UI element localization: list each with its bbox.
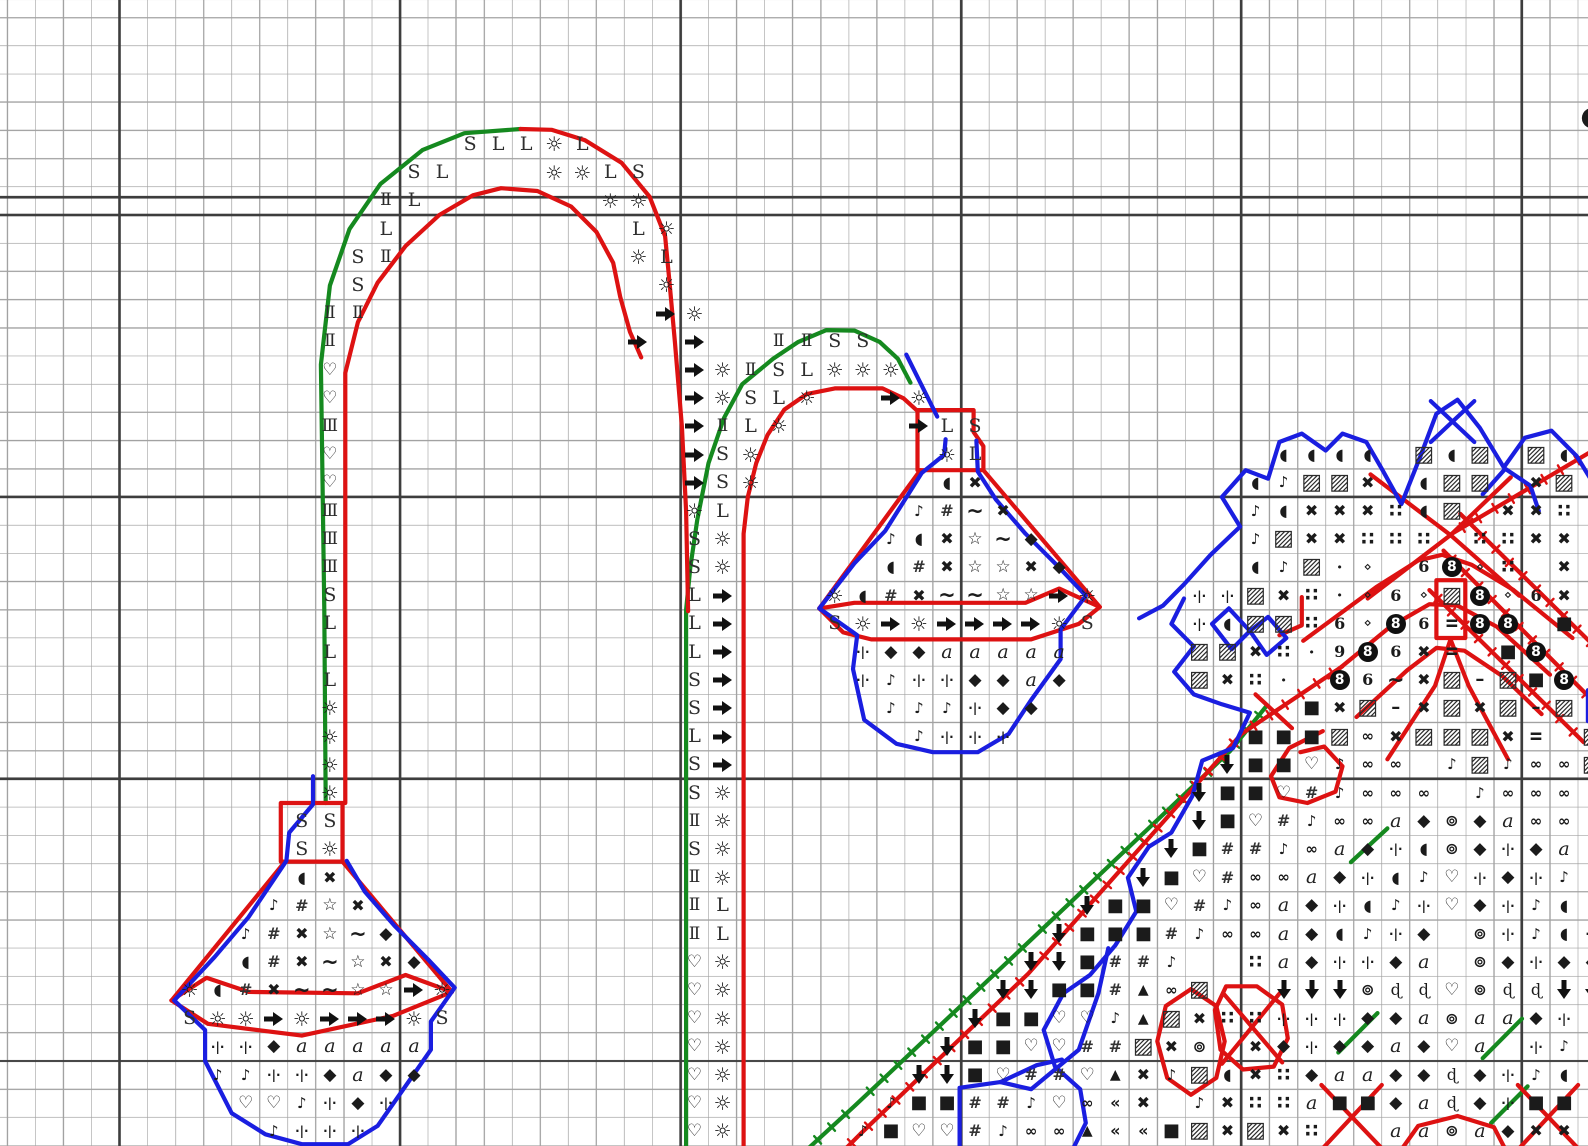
hash-symbol: # [1101, 948, 1129, 976]
letter-S-symbol: S [288, 835, 316, 863]
half-moon-symbol: ◖ [933, 469, 961, 497]
sun-symbol: ☼ [316, 723, 344, 751]
filled-diamond-symbol: ◆ [1382, 1089, 1410, 1117]
star-outline-symbol: ☆ [344, 948, 372, 976]
sun-symbol: ☼ [709, 553, 737, 581]
filled-diamond-symbol: ◆ [1494, 1117, 1522, 1145]
heavy-x-symbol: ✖ [372, 948, 400, 976]
arrow-right-symbol [877, 384, 905, 412]
roman-two-symbol: Ⅱ [793, 328, 821, 356]
heart-outline-symbol: ♡ [1073, 1061, 1101, 1089]
spiral-symbol: ⊚ [1438, 835, 1466, 863]
filled-square-symbol: ■ [1242, 779, 1270, 807]
circled-eight-symbol: 8 [1382, 610, 1410, 638]
heart-outline-symbol: ♡ [316, 356, 344, 384]
filled-triangle-symbol: ▲ [1129, 976, 1157, 1004]
letter-L-symbol: L [316, 638, 344, 666]
hatched-square-symbol: ▨ [1438, 469, 1466, 497]
hash-symbol: # [232, 976, 260, 1004]
hatched-square-symbol: ▨ [1466, 723, 1494, 751]
filled-diamond-symbol: ◆ [344, 1089, 372, 1117]
letter-a-symbol: a [1298, 1089, 1326, 1117]
note-symbol: ♪ [1242, 497, 1270, 525]
filled-diamond-symbol: ◆ [1522, 1005, 1550, 1033]
filled-diamond-symbol: ◆ [316, 1061, 344, 1089]
sun-symbol: ☼ [1045, 610, 1073, 638]
heavy-x-symbol: ✖ [1242, 1061, 1270, 1089]
small-diamond-symbol: ⋄ [1354, 582, 1382, 610]
dot-bar-dot-symbol: ·|· [1522, 864, 1550, 892]
dot-symbol: • [1270, 666, 1298, 694]
arrow-right-symbol [877, 610, 905, 638]
hash-symbol: # [1242, 835, 1270, 863]
hash-symbol: # [1270, 807, 1298, 835]
filled-diamond-symbol: ◆ [1298, 920, 1326, 948]
note-symbol: ♪ [1550, 1033, 1578, 1061]
sun-symbol: ☼ [821, 582, 849, 610]
dot-bar-dot-symbol: ·|· [1326, 1005, 1354, 1033]
filled-diamond-symbol: ◆ [1326, 864, 1354, 892]
sun-symbol: ☼ [709, 525, 737, 553]
half-moon-symbol: ◖ [1213, 610, 1241, 638]
filled-diamond-symbol: ◆ [1466, 835, 1494, 863]
half-moon-symbol: ◖ [849, 582, 877, 610]
dot-bar-dot-symbol: ·|· [1298, 1033, 1326, 1061]
hatched-square-symbol: ▨ [1438, 666, 1466, 694]
arrow-right-symbol [260, 1005, 288, 1033]
filled-diamond-symbol: ◆ [1326, 1033, 1354, 1061]
filled-triangle-symbol: ▲ [1101, 1061, 1129, 1089]
letter-S-symbol: S [681, 751, 709, 779]
hash-symbol: # [989, 1089, 1017, 1117]
hatched-square-symbol: ▨ [1354, 694, 1382, 722]
roman-two-symbol: Ⅱ [372, 187, 400, 215]
note-symbol: ♪ [260, 1117, 288, 1145]
note-symbol: ♪ [1298, 807, 1326, 835]
letter-L-symbol: L [624, 215, 652, 243]
four-dots-symbol: ∷ [1270, 1089, 1298, 1117]
heavy-x-symbol: ✖ [933, 553, 961, 581]
roman-two-symbol: Ⅱ [316, 328, 344, 356]
letter-L-symbol: L [652, 243, 680, 271]
arrow-right-symbol [989, 610, 1017, 638]
filled-diamond-symbol: ◆ [1494, 864, 1522, 892]
infinity-symbol: ∞ [1298, 835, 1326, 863]
filled-diamond-symbol: ◆ [1410, 807, 1438, 835]
arrow-right-symbol [681, 441, 709, 469]
filled-square-symbol: ■ [1242, 751, 1270, 779]
filled-diamond-symbol: ◆ [1494, 948, 1522, 976]
filled-square-symbol: ■ [905, 1089, 933, 1117]
filled-diamond-symbol: ◆ [1410, 1061, 1438, 1089]
hatched-square-symbol: ▨ [1466, 751, 1494, 779]
note-symbol: ♪ [1185, 1089, 1213, 1117]
sun-symbol: ☼ [709, 807, 737, 835]
heavy-x-symbol: ✖ [1298, 525, 1326, 553]
heavy-x-symbol: ✖ [1129, 1061, 1157, 1089]
hash-symbol: # [1017, 1061, 1045, 1089]
half-moon-symbol: ◖ [1213, 1061, 1241, 1089]
note-symbol: ♪ [1017, 1089, 1045, 1117]
note-symbol: ♪ [849, 1117, 877, 1145]
arrow-right-symbol [400, 976, 428, 1004]
hatched-square-symbol: ▨ [1438, 497, 1466, 525]
small-diamond-symbol: ⋄ [1354, 610, 1382, 638]
roman-two-symbol: Ⅱ [681, 920, 709, 948]
filled-square-symbol: ■ [1550, 610, 1578, 638]
circled-eight-symbol: 8 [1466, 610, 1494, 638]
note-symbol: ♪ [1522, 1061, 1550, 1089]
filled-square-symbol: ■ [1213, 807, 1241, 835]
heavy-x-symbol: ✖ [1410, 666, 1438, 694]
letter-L-symbol: L [596, 159, 624, 187]
heavy-x-symbol: ✖ [1017, 553, 1045, 581]
six-symbol: 6 [1410, 553, 1438, 581]
filled-square-symbol: ■ [1326, 1089, 1354, 1117]
letter-a-symbol: a [933, 638, 961, 666]
infinity-symbol: ∞ [1522, 807, 1550, 835]
half-moon-symbol: ◖ [1550, 920, 1578, 948]
heavy-x-symbol: ✖ [1550, 582, 1578, 610]
star-outline-symbol: ☆ [316, 920, 344, 948]
tilde-symbol: ~ [933, 582, 961, 610]
dash-symbol: – [1522, 694, 1550, 722]
dot-symbol: • [1326, 582, 1354, 610]
arrow-down-symbol [989, 976, 1017, 1004]
letter-S-symbol: S [456, 130, 484, 158]
heavy-x-symbol: ✖ [1213, 1089, 1241, 1117]
infinity-symbol: ∞ [1410, 779, 1438, 807]
arrow-right-symbol [709, 666, 737, 694]
sun-symbol: ☼ [624, 243, 652, 271]
filled-diamond-symbol: ◆ [1017, 694, 1045, 722]
four-dots-symbol: ∷ [1466, 525, 1494, 553]
dot-bar-dot-symbol: ·|· [1382, 920, 1410, 948]
heavy-x-symbol: ✖ [1550, 525, 1578, 553]
letter-a-symbol: a [1410, 1089, 1438, 1117]
note-symbol: ♪ [260, 892, 288, 920]
hatched-square-symbol: ▨ [1466, 469, 1494, 497]
four-dots-symbol: ∷ [1494, 553, 1522, 581]
heart-outline-symbol: ♡ [681, 1005, 709, 1033]
filled-diamond-symbol: ◆ [260, 1033, 288, 1061]
tilde-symbol: ~ [316, 948, 344, 976]
sun-symbol: ☼ [709, 1089, 737, 1117]
arrow-down-symbol [933, 1033, 961, 1061]
letter-L-symbol: L [709, 497, 737, 525]
tilde-symbol: ~ [316, 976, 344, 1004]
sun-symbol: ☼ [709, 1005, 737, 1033]
tilde-symbol: ~ [288, 976, 316, 1004]
infinity-symbol: ∞ [1522, 779, 1550, 807]
hash-symbol: # [260, 948, 288, 976]
note-symbol: ♪ [288, 1089, 316, 1117]
filled-diamond-symbol: ◆ [1410, 920, 1438, 948]
arrow-down-symbol [1157, 835, 1185, 863]
circled-eight-symbol: 8 [1354, 638, 1382, 666]
dash-symbol: – [1382, 694, 1410, 722]
letter-a-symbol: a [1045, 638, 1073, 666]
hatched-square-symbol: ▨ [1270, 525, 1298, 553]
letter-S-symbol: S [400, 159, 428, 187]
four-dots-symbol: ∷ [1242, 1005, 1270, 1033]
letter-a-symbol: a [344, 1061, 372, 1089]
heart-outline-symbol: ♡ [681, 1089, 709, 1117]
letter-S-symbol: S [681, 553, 709, 581]
letter-S-symbol: S [428, 1005, 456, 1033]
filled-square-symbol: ■ [1354, 1089, 1382, 1117]
heavy-x-symbol: ✖ [1410, 638, 1438, 666]
heavy-x-symbol: ✖ [1213, 1117, 1241, 1145]
dot-bar-dot-symbol: ·|· [989, 723, 1017, 751]
letter-a-symbol: a [1298, 864, 1326, 892]
sun-symbol: ☼ [709, 779, 737, 807]
stitch-cells-layer: ●SLL☼LSL☼☼LSⅡL☼☼LL☼SⅡ☼LS☼ⅡⅡ☼ⅡⅡⅡSS♡☼ⅡSL☼☼… [0, 0, 1588, 1146]
half-moon-symbol: ◖ [232, 948, 260, 976]
half-moon-symbol: ◖ [1242, 553, 1270, 581]
filled-diamond-symbol: ◆ [1298, 948, 1326, 976]
note-symbol: ♪ [1270, 553, 1298, 581]
guillemet-symbol: « [1101, 1089, 1129, 1117]
letter-L-symbol: L [709, 892, 737, 920]
four-dots-symbol: ∷ [1242, 666, 1270, 694]
four-dots-symbol: ∷ [1382, 497, 1410, 525]
sun-symbol: ☼ [877, 356, 905, 384]
filled-square-symbol: ■ [989, 1005, 1017, 1033]
heavy-x-symbol: ✖ [989, 497, 1017, 525]
heavy-x-symbol: ✖ [1270, 1117, 1298, 1145]
dot-symbol: • [1326, 553, 1354, 581]
dot-bar-dot-symbol: ·|· [288, 1061, 316, 1089]
heart-outline-symbol: ♡ [260, 1089, 288, 1117]
letter-L-symbol: L [681, 723, 709, 751]
dot-bar-dot-symbol: ·|· [849, 638, 877, 666]
filled-square-symbol: ■ [961, 1061, 989, 1089]
filled-square-symbol: ■ [1101, 892, 1129, 920]
roman-two-symbol: Ⅱ [372, 243, 400, 271]
heart-outline-symbol: ♡ [933, 1117, 961, 1145]
half-moon-symbol: ◖ [1410, 497, 1438, 525]
sun-symbol: ☼ [596, 187, 624, 215]
letter-a-symbol: a [372, 1033, 400, 1061]
half-moon-symbol: ◖ [1354, 441, 1382, 469]
note-symbol: ♪ [877, 694, 905, 722]
dot-bar-dot-symbol: ·|· [1326, 892, 1354, 920]
heavy-x-symbol: ✖ [1213, 666, 1241, 694]
arrow-right-symbol [624, 328, 652, 356]
half-moon-symbol: ◖ [204, 976, 232, 1004]
heart-outline-symbol: ♡ [1298, 751, 1326, 779]
dot-bar-dot-symbol: ·|· [204, 1033, 232, 1061]
filled-square-symbol: ■ [961, 1033, 989, 1061]
hatched-square-symbol: ▨ [1242, 610, 1270, 638]
dot-bar-dot-symbol: ·|· [288, 1117, 316, 1145]
six-symbol: 6 [1410, 610, 1438, 638]
filled-diamond-symbol: ◆ [961, 666, 989, 694]
infinity-symbol: ∞ [1045, 1117, 1073, 1145]
hatched-square-symbol: ▨ [1550, 694, 1578, 722]
dot-bar-dot-symbol: ·|· [849, 666, 877, 694]
arrow-down-symbol [1073, 892, 1101, 920]
infinity-symbol: ∞ [1354, 723, 1382, 751]
spiral-symbol: ⊚ [1466, 920, 1494, 948]
equals-symbol: = [1438, 634, 1466, 669]
letter-a-symbol: a [1410, 1005, 1438, 1033]
four-dots-symbol: ∷ [1494, 525, 1522, 553]
sun-symbol: ☼ [849, 610, 877, 638]
filled-square-symbol: ■ [1242, 723, 1270, 751]
dot-bar-dot-symbol: ·|· [1550, 1005, 1578, 1033]
guillemet-symbol: « [1101, 1117, 1129, 1145]
letter-L-symbol: L [568, 130, 596, 158]
filled-square-symbol: ■ [1017, 1005, 1045, 1033]
hatched-square-symbol: ▨ [1242, 582, 1270, 610]
six-symbol: 6 [1382, 582, 1410, 610]
heavy-x-symbol: ✖ [1326, 497, 1354, 525]
hash-symbol: # [933, 497, 961, 525]
roman-two-symbol: Ⅱ [709, 412, 737, 440]
sun-symbol: ☼ [709, 356, 737, 384]
heart-outline-symbol: ♡ [1438, 864, 1466, 892]
filled-diamond-symbol: ◆ [1578, 948, 1588, 976]
nine-symbol: 9 [1326, 638, 1354, 666]
sun-symbol: ☼ [568, 159, 596, 187]
half-moon-symbol: ◖ [1382, 864, 1410, 892]
letter-L-symbol: L [765, 384, 793, 412]
note-symbol: ♪ [232, 920, 260, 948]
sun-symbol: ☼ [652, 215, 680, 243]
note-symbol: ♪ [1185, 920, 1213, 948]
half-moon-symbol: ◖ [1550, 892, 1578, 920]
infinity-symbol: ∞ [1354, 751, 1382, 779]
arrow-right-symbol [372, 1005, 400, 1033]
four-dots-symbol: ∷ [1270, 638, 1298, 666]
dot-bar-dot-symbol: ·|· [260, 1061, 288, 1089]
hatched-square-symbol: ▨ [1438, 694, 1466, 722]
filled-diamond-symbol: ◆ [400, 1061, 428, 1089]
hash-symbol: # [1073, 1033, 1101, 1061]
spiral-symbol: ⊚ [1438, 807, 1466, 835]
sun-symbol: ☼ [709, 976, 737, 1004]
heavy-x-symbol: ✖ [1129, 1089, 1157, 1117]
six-symbol: 6 [1522, 582, 1550, 610]
filled-diamond-symbol: ◆ [1045, 553, 1073, 581]
letter-S-symbol: S [316, 807, 344, 835]
heart-outline-symbol: ♡ [316, 469, 344, 497]
sun-symbol: ☼ [540, 159, 568, 187]
four-dots-symbol: ∷ [1270, 1061, 1298, 1089]
heart-outline-symbol: ♡ [1045, 1005, 1073, 1033]
arrow-right-symbol [1017, 610, 1045, 638]
infinity-symbol: ∞ [1354, 779, 1382, 807]
half-moon-symbol: ◖ [1438, 441, 1466, 469]
arrow-right-symbol [709, 694, 737, 722]
sun-symbol: ☼ [821, 356, 849, 384]
roman-three-symbol: Ⅲ [316, 412, 344, 440]
filled-square-symbol: ■ [1045, 976, 1073, 1004]
heavy-x-symbol: ✖ [1494, 497, 1522, 525]
half-moon-symbol: ◖ [1410, 835, 1438, 863]
arrow-right-symbol [709, 723, 737, 751]
letter-S-symbol: S [624, 159, 652, 187]
filled-square-symbol: ■ [1073, 976, 1101, 1004]
dot-bar-dot-symbol: ·|· [1494, 920, 1522, 948]
letter-L-symbol: L [428, 159, 456, 187]
roman-three-symbol: Ⅲ [316, 525, 344, 553]
heavy-x-symbol: ✖ [1242, 1033, 1270, 1061]
hatched-square-symbol: ▨ [1578, 723, 1588, 751]
arrow-down-symbol [1017, 948, 1045, 976]
filled-diamond-symbol: ◆ [372, 920, 400, 948]
heavy-x-symbol: ✖ [1522, 1117, 1550, 1145]
star-outline-symbol: ☆ [989, 582, 1017, 610]
dot-bar-dot-symbol: ·|· [1185, 610, 1213, 638]
arrow-right-symbol [681, 328, 709, 356]
infinity-symbol: ∞ [1382, 751, 1410, 779]
d-swirl-symbol: ɖ [1382, 976, 1410, 1004]
sun-symbol: ☼ [316, 835, 344, 863]
hatched-square-symbol: ▨ [1298, 469, 1326, 497]
letter-L-symbol: L [484, 130, 512, 158]
heavy-x-symbol: ✖ [1326, 694, 1354, 722]
filled-square-symbol: ■ [1494, 638, 1522, 666]
letter-L-symbol: L [933, 412, 961, 440]
arrow-down-symbol [1045, 948, 1073, 976]
letter-S-symbol: S [344, 243, 372, 271]
arrow-right-symbol [709, 582, 737, 610]
note-symbol: ♪ [1522, 892, 1550, 920]
note-symbol: ♪ [877, 666, 905, 694]
letter-L-symbol: L [316, 610, 344, 638]
hash-symbol: # [288, 892, 316, 920]
heavy-x-symbol: ✖ [260, 976, 288, 1004]
letter-S-symbol: S [821, 610, 849, 638]
note-symbol: ♪ [933, 694, 961, 722]
letter-a-symbol: a [316, 1033, 344, 1061]
roman-two-symbol: Ⅱ [316, 300, 344, 328]
note-symbol: ♪ [1157, 948, 1185, 976]
heavy-x-symbol: ✖ [1494, 723, 1522, 751]
dot-bar-dot-symbol: ·|· [961, 694, 989, 722]
d-swirl-symbol: ɖ [1438, 1089, 1466, 1117]
tilde-symbol: ~ [1382, 666, 1410, 694]
arrow-down-symbol [1185, 807, 1213, 835]
dot-bar-dot-symbol: ·|· [1494, 835, 1522, 863]
dot-bar-dot-symbol: ·|· [1270, 1005, 1298, 1033]
heavy-x-symbol: ✖ [1550, 1117, 1578, 1145]
hash-symbol: # [1298, 779, 1326, 807]
dot-bar-dot-symbol: ·|· [316, 1117, 344, 1145]
dot-bar-dot-symbol: ·|· [1213, 582, 1241, 610]
hatched-square-symbol: ▨ [1185, 638, 1213, 666]
filled-square-symbol: ■ [1129, 920, 1157, 948]
dot-bar-dot-symbol: ·|· [1354, 948, 1382, 976]
infinity-symbol: ∞ [1522, 751, 1550, 779]
roman-two-symbol: Ⅱ [765, 328, 793, 356]
hatched-square-symbol: ▨ [1466, 441, 1494, 469]
hatched-square-symbol: ▨ [1550, 469, 1578, 497]
note-symbol: ♪ [877, 1089, 905, 1117]
hatched-square-symbol: ▨ [1326, 723, 1354, 751]
heavy-x-symbol: ✖ [1270, 582, 1298, 610]
letter-S-symbol: S [681, 525, 709, 553]
letter-a-symbol: a [1354, 1061, 1382, 1089]
heavy-x-symbol: ✖ [1550, 553, 1578, 581]
letter-S-symbol: S [765, 356, 793, 384]
arrow-down-symbol [933, 1061, 961, 1089]
heavy-x-symbol: ✖ [1354, 469, 1382, 497]
note-symbol: ♪ [1101, 1005, 1129, 1033]
